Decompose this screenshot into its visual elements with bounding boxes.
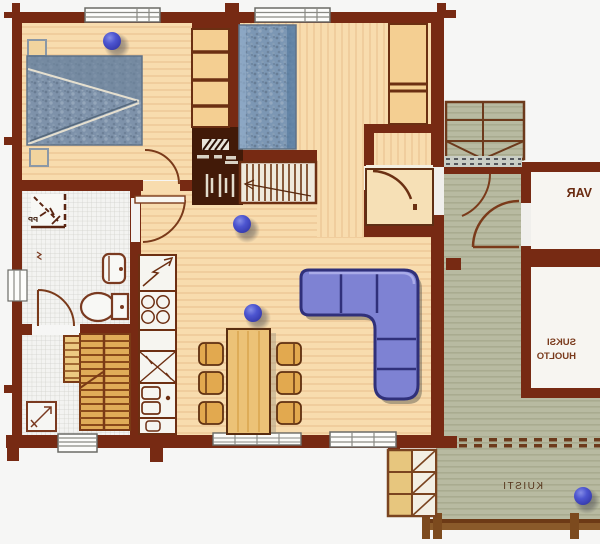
svg-text:SUKSI: SUKSI (547, 337, 576, 348)
svg-text:VAR: VAR (567, 186, 592, 200)
svg-text:HUOLTO: HUOLTO (537, 351, 576, 362)
svg-text:PP: PP (28, 215, 38, 224)
svg-text:KUISTI: KUISTI (502, 481, 543, 492)
